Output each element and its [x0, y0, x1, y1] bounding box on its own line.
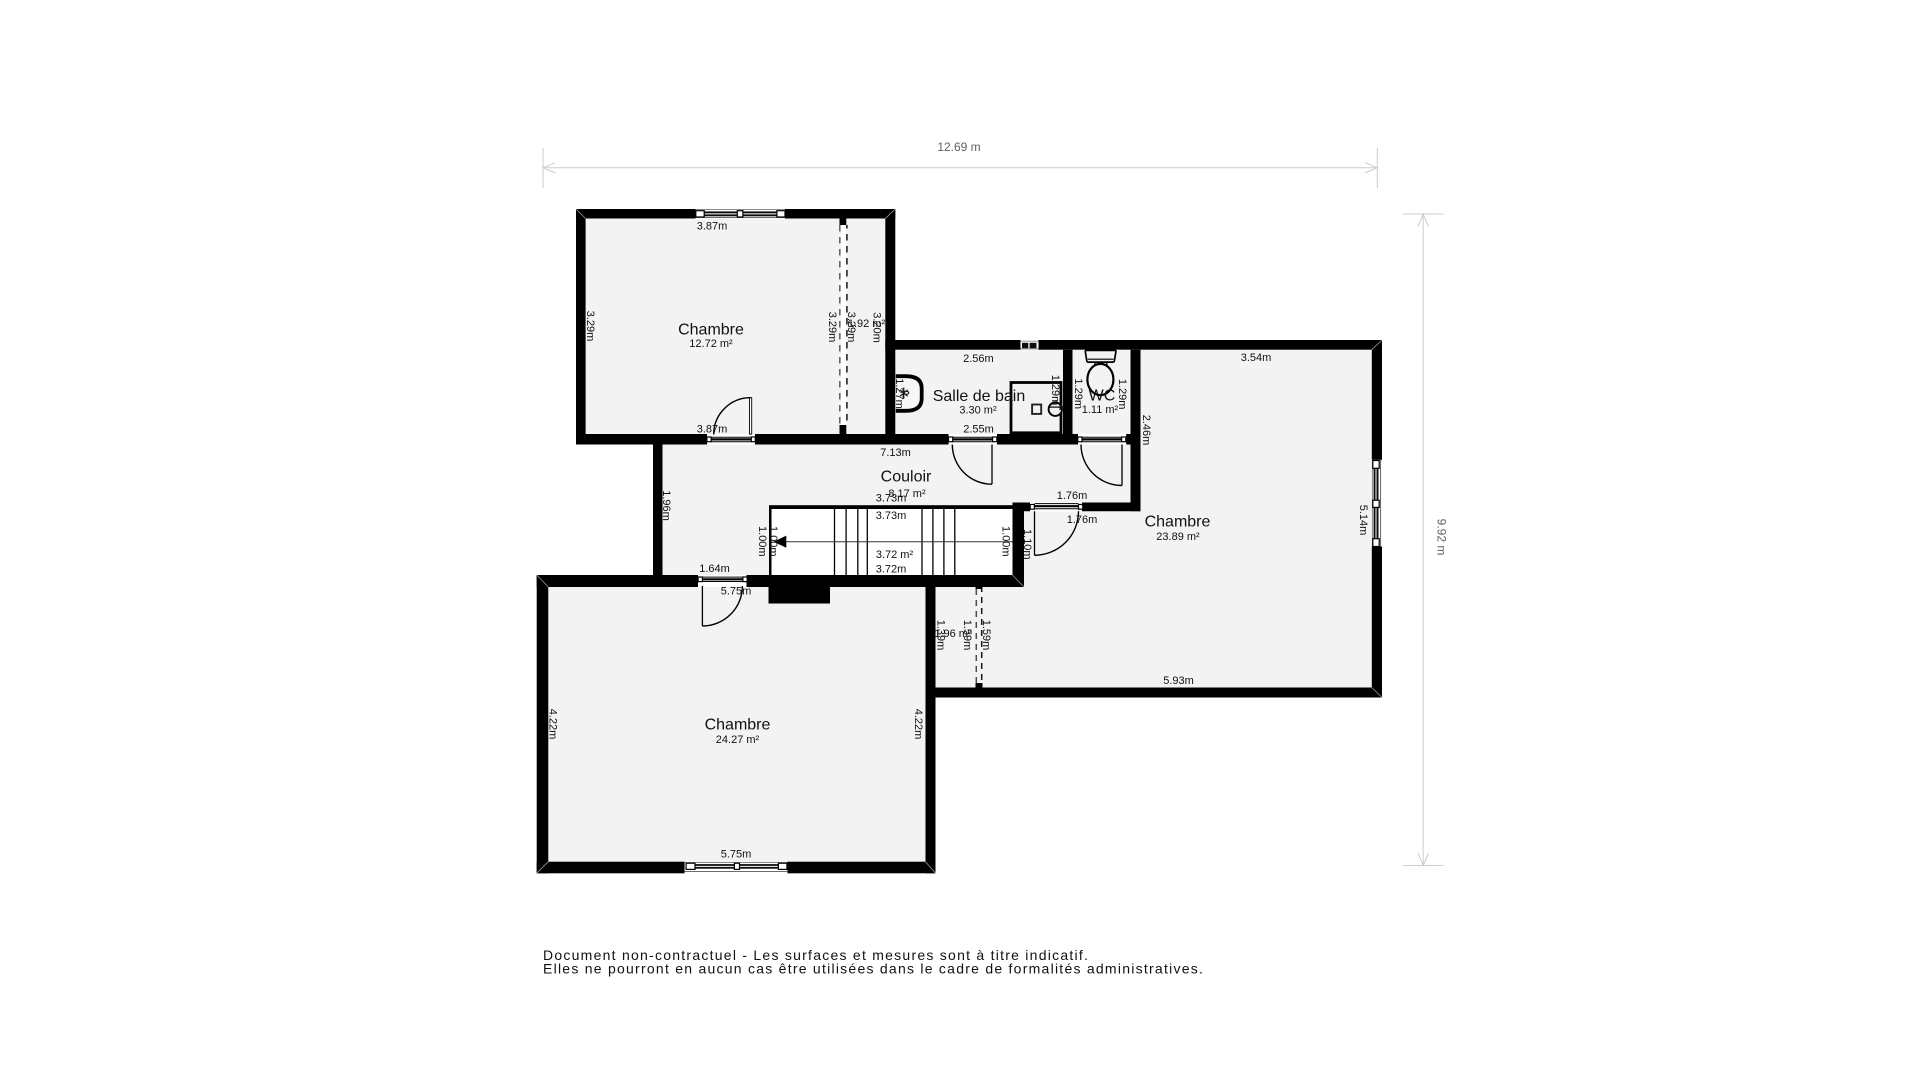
- svg-text:1.96m: 1.96m: [660, 490, 672, 521]
- svg-text:3.29m: 3.29m: [826, 312, 838, 343]
- svg-text:Elles ne pourront en aucun cas: Elles ne pourront en aucun cas être util…: [543, 961, 1204, 977]
- svg-text:4.22m: 4.22m: [912, 709, 924, 740]
- svg-text:1.76m: 1.76m: [1067, 514, 1098, 526]
- svg-text:2.46m: 2.46m: [1140, 415, 1152, 446]
- svg-text:1.29m: 1.29m: [1116, 379, 1128, 410]
- svg-text:1.64m: 1.64m: [699, 563, 730, 575]
- svg-text:Couloir: Couloir: [881, 469, 932, 486]
- svg-text:3.30 m²: 3.30 m²: [959, 405, 997, 417]
- svg-text:Salle de bain: Salle de bain: [933, 388, 1026, 405]
- svg-text:23.89 m²: 23.89 m²: [1156, 531, 1200, 543]
- svg-text:3.72 m²: 3.72 m²: [876, 549, 914, 561]
- svg-text:2.56m: 2.56m: [963, 353, 994, 365]
- svg-text:1.76m: 1.76m: [1057, 490, 1088, 502]
- svg-text:WC: WC: [1089, 388, 1116, 405]
- svg-text:1.59m: 1.59m: [980, 620, 992, 651]
- svg-text:1.29m: 1.29m: [1049, 375, 1061, 406]
- svg-text:3.87m: 3.87m: [697, 220, 728, 232]
- svg-text:5.75m: 5.75m: [721, 848, 752, 860]
- svg-text:3.87m: 3.87m: [697, 423, 728, 435]
- svg-text:1.59m: 1.59m: [961, 620, 973, 651]
- svg-text:3.73m: 3.73m: [876, 510, 907, 522]
- svg-text:1.11 m²: 1.11 m²: [1082, 404, 1119, 416]
- svg-text:1.27m: 1.27m: [893, 378, 905, 409]
- svg-text:24.27 m²: 24.27 m²: [716, 734, 760, 746]
- svg-text:12.72 m²: 12.72 m²: [689, 338, 733, 350]
- svg-text:Chambre: Chambre: [705, 717, 771, 734]
- svg-text:5.93m: 5.93m: [1163, 675, 1194, 687]
- svg-text:3.54m: 3.54m: [1241, 352, 1272, 364]
- svg-text:Chambre: Chambre: [678, 322, 744, 339]
- svg-text:4.22m: 4.22m: [547, 709, 559, 740]
- svg-text:1.10m: 1.10m: [1021, 529, 1033, 560]
- svg-text:1.29m: 1.29m: [1072, 378, 1084, 409]
- svg-text:3.72m: 3.72m: [876, 563, 907, 575]
- svg-text:1.00m: 1.00m: [999, 526, 1011, 557]
- svg-text:1.00m: 1.00m: [756, 526, 768, 557]
- svg-text:3.29m: 3.29m: [845, 312, 857, 343]
- svg-text:1.00m: 1.00m: [767, 526, 779, 557]
- svg-text:Chambre: Chambre: [1145, 514, 1211, 531]
- svg-text:2.55m: 2.55m: [963, 423, 994, 435]
- svg-text:3.29m: 3.29m: [584, 311, 596, 342]
- svg-text:7.13m: 7.13m: [880, 447, 911, 459]
- svg-text:5.75m: 5.75m: [721, 585, 752, 597]
- svg-text:9.92 m: 9.92 m: [1435, 519, 1449, 556]
- svg-text:3.20m: 3.20m: [871, 312, 883, 343]
- svg-text:3.73m: 3.73m: [876, 492, 907, 504]
- svg-text:1.39m: 1.39m: [934, 620, 946, 651]
- svg-text:12.69 m: 12.69 m: [937, 140, 980, 154]
- svg-text:5.14m: 5.14m: [1357, 505, 1369, 536]
